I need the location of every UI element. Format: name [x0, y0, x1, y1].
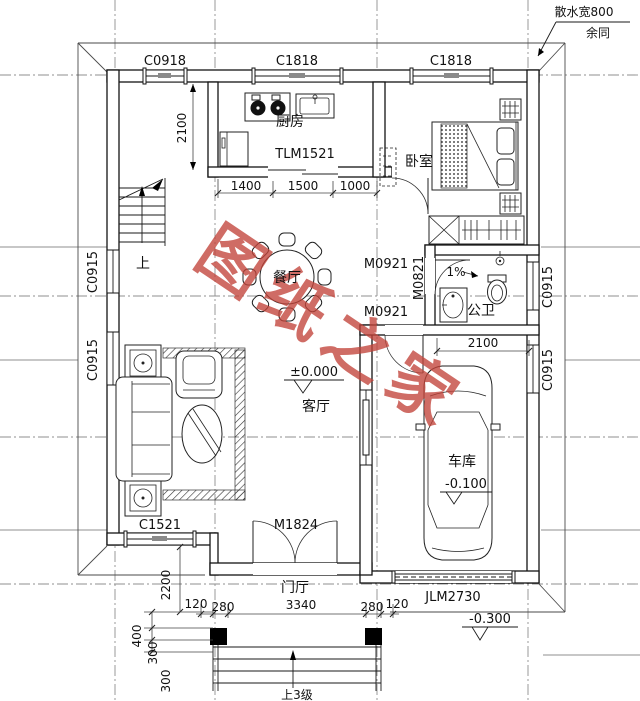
wardrobe [429, 216, 524, 244]
armchair [176, 351, 222, 398]
coffee-table [182, 405, 222, 463]
level-garage: -0.100 [445, 477, 487, 492]
kitchen-fridge [220, 132, 248, 166]
room-bedroom: 卧室 [405, 153, 433, 170]
label-stairs-up: 上 [136, 256, 150, 272]
label-m0921-upper: M0921 [364, 257, 408, 272]
bathroom-sink [440, 288, 467, 322]
label-c0918: C0918 [144, 54, 186, 69]
label-slope: 1% [446, 265, 465, 279]
room-foyer: 门厅 [281, 580, 309, 596]
floor-plan-drawing: 图纸之家 散水宽800 余同 C0918 C1818 C1818 2100 厨房… [0, 0, 640, 701]
level-living: ±0.000 [290, 365, 338, 380]
room-living: 客厅 [302, 398, 330, 415]
level-mark-entry [462, 627, 518, 640]
label-jlm2730: JLM2730 [424, 590, 480, 605]
dim-120-left: 120 [185, 597, 208, 611]
label-c0915-right-bath: C0915 [541, 266, 556, 308]
label-m0821: M0821 [412, 256, 427, 300]
label-c1521: C1521 [139, 518, 181, 533]
garage-door-jlm2730 [392, 571, 515, 583]
dim-garage-2100: 2100 [468, 336, 499, 350]
room-dining: 餐厅 [273, 270, 301, 286]
label-m1824: M1824 [274, 518, 318, 533]
toilet [488, 275, 507, 304]
label-c0915-right-garage: C0915 [541, 349, 556, 391]
dim-280-left: 280 [212, 600, 235, 614]
window-c0915-left-lower [107, 332, 119, 385]
window-c0915-left-upper [107, 250, 119, 293]
nightstand-bottom [500, 193, 521, 214]
sliding-door-tlm1521 [268, 166, 338, 178]
window-c0915-right-bath [527, 262, 539, 310]
stairs [119, 178, 165, 246]
speaker-top [125, 345, 161, 381]
label-c0915-left-upper: C0915 [86, 251, 101, 293]
room-bathroom: 公卫 [467, 303, 495, 319]
dim-1500: 1500 [288, 179, 319, 193]
level-mark-living [284, 380, 344, 393]
dim-120-right: 120 [386, 597, 409, 611]
label-c1818-bedroom: C1818 [430, 54, 472, 69]
label-c1818-kitchen: C1818 [276, 54, 318, 69]
label-c0915-left-lower: C0915 [86, 339, 101, 381]
dim-400: 400 [130, 625, 144, 648]
dim-300-b: 300 [159, 670, 173, 693]
dim-1400: 1400 [231, 179, 262, 193]
dim-2200: 2200 [159, 570, 173, 601]
label-tlm1521: TLM1521 [274, 147, 334, 162]
room-kitchen: 厨房 [276, 114, 304, 130]
label-m0921-lower: M0921 [364, 305, 408, 320]
dim-300-a: 300 [146, 642, 160, 665]
dim-3340: 3340 [286, 598, 317, 612]
dim-stair-2100: 2100 [175, 113, 189, 144]
door-m0921-bedroom [392, 166, 428, 214]
room-garage: 车库 [448, 453, 476, 470]
floor-plan-canvas: 图纸之家 散水宽800 余同 C0918 C1818 C1818 2100 厨房… [0, 0, 640, 701]
dim-1000: 1000 [340, 179, 371, 193]
window-c1521 [124, 531, 196, 547]
bed [432, 122, 518, 190]
speaker-bottom [125, 480, 161, 516]
level-entry: -0.300 [469, 612, 511, 627]
note-splash-width: 散水宽800 [555, 4, 614, 19]
window-c0918 [143, 68, 187, 84]
window-c1818-kitchen [252, 68, 343, 84]
note-rest-same: 余同 [586, 25, 610, 40]
dim-280-right: 280 [361, 600, 384, 614]
nightstand-top [500, 99, 521, 120]
window-c1818-bedroom [410, 68, 493, 84]
label-up-3-steps: 上3级 [281, 688, 313, 701]
entry-steps [210, 628, 382, 691]
splash-note-leader [538, 22, 630, 56]
sofa [116, 377, 172, 481]
